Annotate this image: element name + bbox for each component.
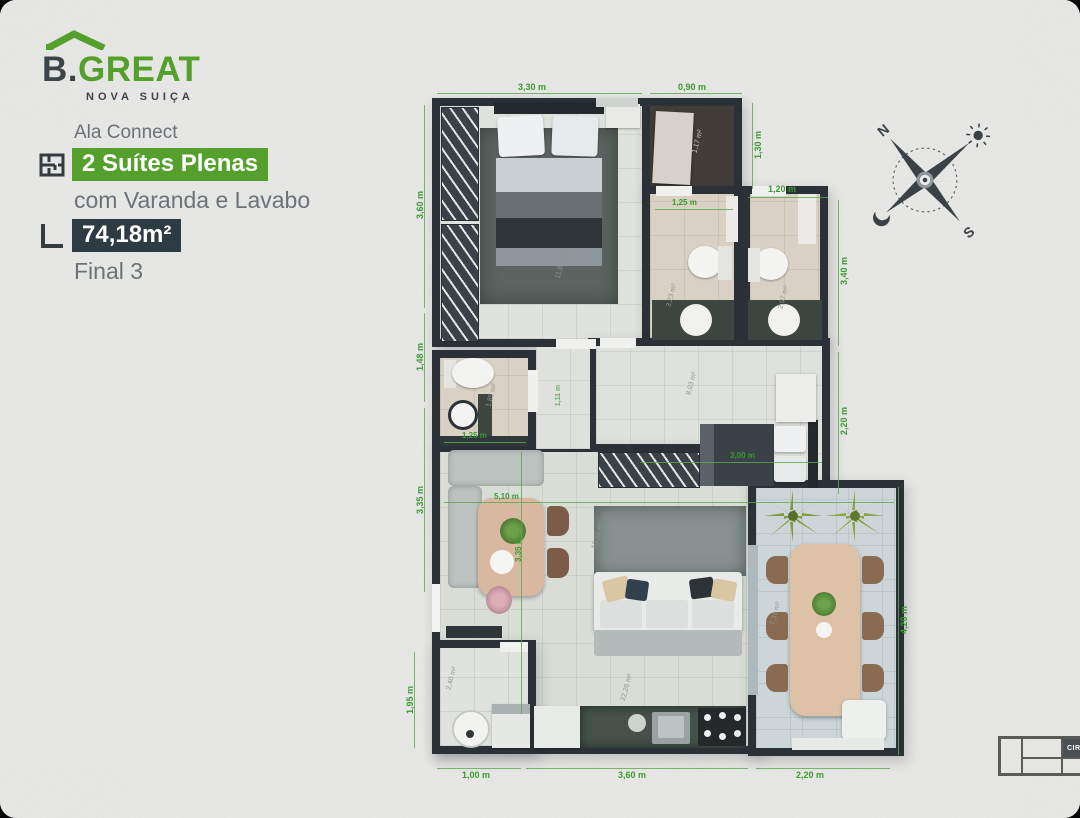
sofa-pillow-navy — [625, 579, 650, 602]
dim-line — [756, 768, 890, 769]
pillow-suite2-top — [774, 426, 806, 452]
dim-label: 3,60 m — [618, 770, 646, 780]
toilet-tank-bathroom-1 — [718, 246, 732, 280]
bed-master-headboard — [494, 102, 604, 114]
keyplan: CIRCULAÇÃO — [998, 736, 1080, 776]
nightstand-master — [606, 104, 640, 128]
sink-bathroom-1 — [680, 304, 712, 336]
door-lavabo — [528, 370, 538, 412]
dim-line — [640, 462, 822, 463]
sofa-cushion-2 — [646, 600, 688, 628]
varanda-cup — [816, 622, 832, 638]
laundry-basin — [452, 710, 490, 748]
door-suite-2 — [600, 338, 636, 348]
laundry-tap — [466, 730, 474, 738]
washing-machine-panel — [492, 704, 530, 714]
bed-suite2-fold — [700, 424, 714, 486]
kitchen-cabinet — [534, 706, 580, 748]
kitchen-sink-basin — [658, 716, 684, 738]
varanda-centerpiece — [812, 592, 836, 616]
pillow-master-left — [497, 115, 545, 157]
dim-label: 3,35 m — [514, 537, 523, 562]
bed-master-sheet — [496, 158, 602, 192]
paper-background: B.GREAT NOVA SUIÇA Ala Connect 2 Suítes … — [0, 0, 1080, 818]
dim-label: 4,20 m — [899, 606, 909, 634]
window-master-suite — [596, 98, 638, 107]
dim-line — [437, 768, 521, 769]
dim-label: 3,30 m — [518, 82, 546, 92]
keyplan-cell — [1022, 738, 1062, 758]
pillow-master-right — [551, 115, 598, 157]
burner-6 — [734, 730, 741, 737]
dim-label: 3,60 m — [415, 191, 425, 219]
burner-4 — [704, 730, 711, 737]
hallway-floor — [536, 347, 590, 449]
sofa-cushion-1 — [600, 600, 642, 628]
dim-label: 2,20 m — [796, 770, 824, 780]
burner-3 — [734, 714, 741, 721]
plant-1 — [764, 490, 822, 542]
keyplan-cell — [1062, 758, 1080, 774]
bed-master-throw — [496, 218, 602, 248]
dim-label: 1,25 m — [462, 431, 487, 440]
dining-table — [478, 498, 544, 596]
dim-line — [655, 209, 733, 210]
dim-line — [437, 93, 642, 94]
desk-suite-2 — [776, 374, 816, 422]
dim-line — [526, 768, 748, 769]
dim-label: 3,35 m — [415, 486, 425, 514]
sofa-chaise — [594, 630, 742, 656]
floor-plan: 3,30 m 0,90 m 1,30 m 1,20 m 3,40 m 2,20 … — [0, 0, 1080, 818]
entry-shelf — [446, 626, 502, 638]
bed-master-band — [496, 192, 602, 218]
dim-label: 5,10 m — [494, 492, 519, 501]
toilet-lavabo — [452, 358, 494, 388]
bed-suite2-headboard — [808, 420, 818, 488]
varanda-chair-l3 — [766, 664, 788, 692]
flower-pot — [486, 586, 512, 614]
keyplan-circulation-cell: CIRCULAÇÃO — [1062, 738, 1080, 758]
dim-label: 1,25 m — [672, 198, 697, 207]
dim-line — [444, 502, 894, 503]
varanda-chair-l1 — [766, 556, 788, 584]
sofa-cushion-3 — [692, 600, 734, 628]
toilet-tank-bathroom-2 — [748, 248, 760, 282]
wardrobe-master-2 — [441, 224, 479, 342]
burner-5 — [719, 733, 726, 740]
bed-master-foot — [496, 248, 602, 266]
burner-2 — [719, 712, 726, 719]
kitchen-board — [628, 714, 646, 732]
wardrobe-master-1 — [441, 107, 479, 221]
varanda-chair-r3 — [862, 664, 884, 692]
shelf-bathroom-2 — [798, 194, 816, 244]
dim-label: 0,90 m — [678, 82, 706, 92]
varanda-side-table — [842, 700, 886, 740]
shelf-bathroom-1 — [726, 196, 738, 242]
dim-line — [521, 452, 522, 714]
window-living — [432, 584, 440, 632]
dim-label: 3,40 m — [839, 257, 849, 285]
dim-label: 1,00 m — [462, 770, 490, 780]
door-bathroom-1 — [656, 186, 692, 196]
dim-label: 1,30 m — [753, 131, 763, 159]
door-laundry — [500, 642, 528, 652]
rug-living — [594, 506, 746, 576]
dining-chair-2 — [547, 548, 569, 578]
wardrobe-suite-2 — [598, 452, 700, 488]
table-bowl — [490, 550, 514, 574]
corner-sofa-top — [448, 450, 544, 486]
dim-label: 1,11 m — [555, 385, 562, 406]
tech-slab — [652, 111, 694, 185]
dim-line — [444, 442, 526, 443]
varanda-planter — [792, 738, 884, 750]
toilet-bathroom-1 — [688, 246, 722, 278]
dim-label: 1,48 m — [415, 343, 425, 371]
varanda-chair-r2 — [862, 612, 884, 640]
sink-lavabo — [448, 400, 478, 430]
burner-1 — [704, 714, 711, 721]
dim-label: 1,95 m — [405, 686, 415, 714]
dim-line — [748, 197, 828, 198]
dining-chair-1 — [547, 506, 569, 536]
door-master-suite — [556, 339, 596, 349]
dim-label: 2,20 m — [839, 407, 849, 435]
keyplan-cell — [1000, 738, 1022, 774]
dim-label: 3,00 m — [730, 451, 755, 460]
sofa-pillow-beige-2 — [710, 578, 737, 602]
pillow-suite2-bottom — [774, 456, 806, 482]
sliding-door-varanda — [748, 545, 758, 695]
plant-2 — [826, 490, 884, 542]
dim-label: 1,20 m — [768, 184, 796, 194]
keyplan-cell — [1022, 758, 1062, 774]
dim-line — [650, 93, 742, 94]
varanda-chair-r1 — [862, 556, 884, 584]
